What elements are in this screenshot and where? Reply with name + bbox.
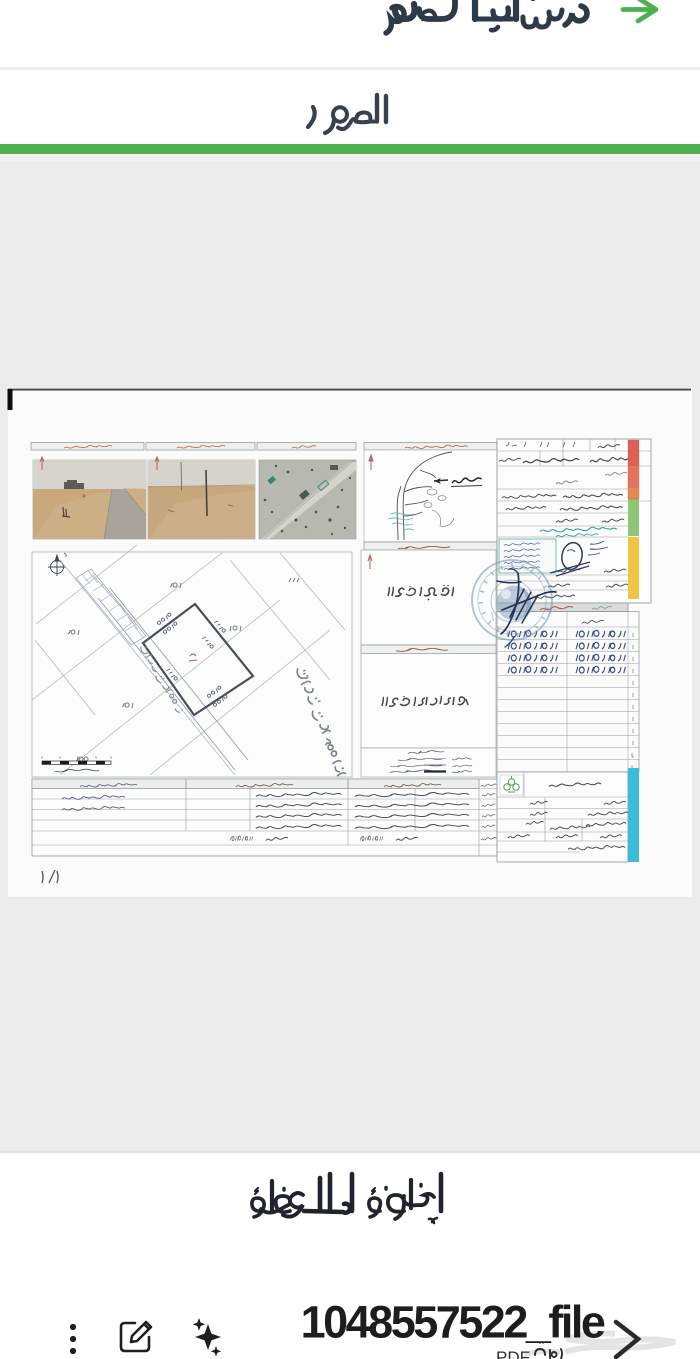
svg-text:PDF: PDF — [496, 1348, 530, 1359]
svg-text:1048557522_file: 1048557522_file — [301, 1297, 605, 1348]
